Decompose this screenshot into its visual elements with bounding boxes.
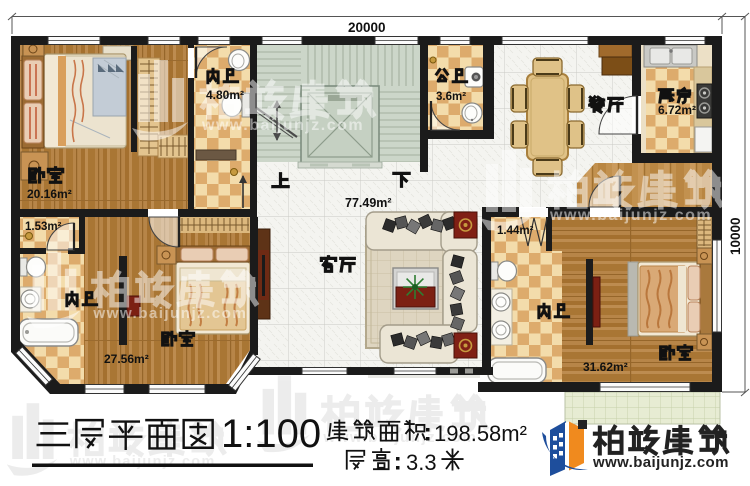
svg-text:77.49m²: 77.49m² <box>345 196 392 210</box>
svg-text:1:100: 1:100 <box>221 412 321 456</box>
svg-text:20.16m²: 20.16m² <box>27 187 72 201</box>
svg-text:10000: 10000 <box>728 217 743 255</box>
svg-text:1.44m²: 1.44m² <box>497 225 534 237</box>
svg-text:3.6m²: 3.6m² <box>436 91 466 103</box>
svg-text:www.baijunjz.com: www.baijunjz.com <box>592 454 729 471</box>
svg-text:31.62m²: 31.62m² <box>583 360 628 374</box>
svg-text:20000: 20000 <box>348 20 386 35</box>
svg-text:www.baijunjz.com: www.baijunjz.com <box>201 117 364 134</box>
svg-text:www.baijunjz.com: www.baijunjz.com <box>549 207 712 224</box>
svg-text:198.58m²: 198.58m² <box>434 421 527 446</box>
svg-text:6.72m²: 6.72m² <box>658 103 696 117</box>
svg-text:www.baijunjz.com: www.baijunjz.com <box>92 305 247 322</box>
svg-text:www.baijunjz.com: www.baijunjz.com <box>69 454 216 470</box>
svg-text:3.3: 3.3 <box>406 450 437 475</box>
svg-text:4.80m²: 4.80m² <box>206 88 244 102</box>
svg-text:1.53m²: 1.53m² <box>25 221 62 233</box>
svg-text:27.56m²: 27.56m² <box>104 352 149 366</box>
